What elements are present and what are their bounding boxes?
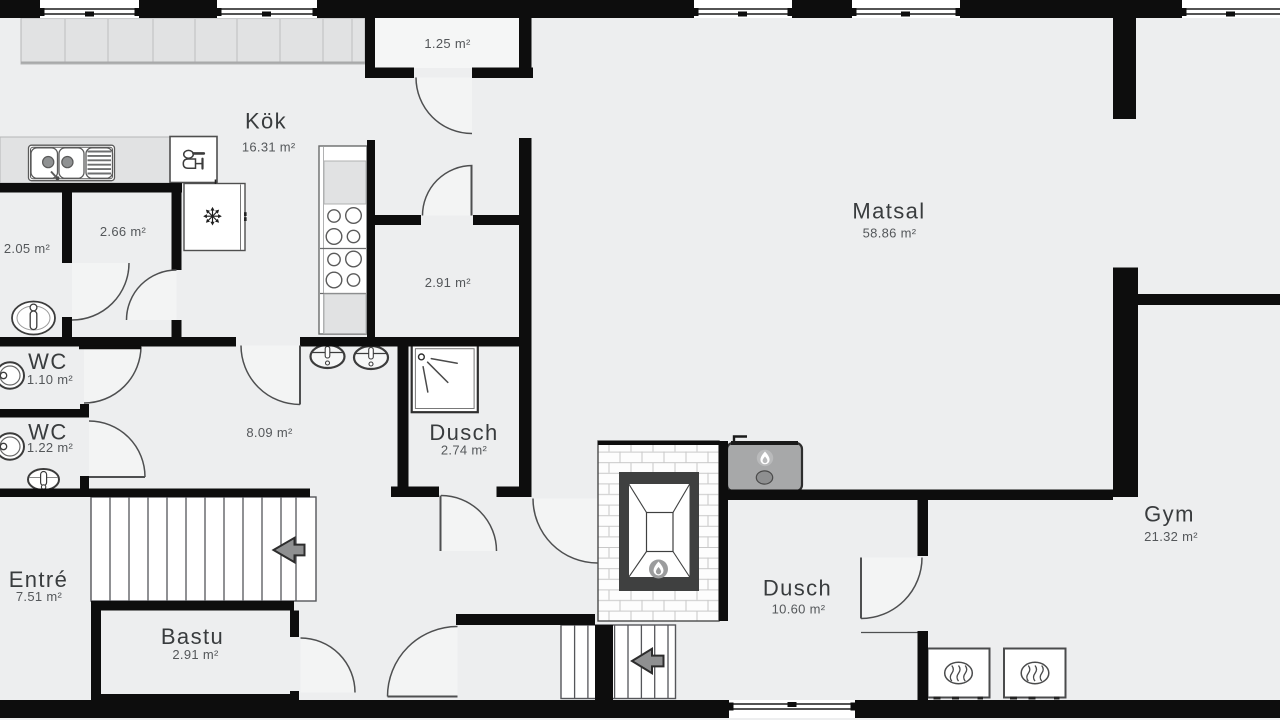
svg-text:7.51 m²: 7.51 m² [16,589,63,604]
svg-text:1.25 m²: 1.25 m² [424,36,471,51]
svg-text:2.05 m²: 2.05 m² [4,241,51,256]
svg-text:Dusch: Dusch [763,576,832,601]
svg-text:Gym: Gym [1144,502,1195,527]
svg-text:8.09 m²: 8.09 m² [246,425,293,440]
svg-text:21.32 m²: 21.32 m² [1144,529,1198,544]
svg-text:WC: WC [28,349,67,374]
svg-text:16.31 m²: 16.31 m² [242,140,296,155]
svg-text:1.22 m²: 1.22 m² [27,440,74,455]
svg-text:2.66 m²: 2.66 m² [100,224,147,239]
svg-text:2.91 m²: 2.91 m² [425,275,472,290]
svg-text:10.60 m²: 10.60 m² [772,602,826,617]
svg-text:Matsal: Matsal [852,198,925,223]
svg-text:58.86 m²: 58.86 m² [863,226,917,241]
svg-text:Dusch: Dusch [429,420,498,445]
svg-text:Bastu: Bastu [161,624,224,649]
svg-text:2.74 m²: 2.74 m² [441,443,488,458]
svg-text:Kök: Kök [245,109,287,134]
svg-text:2.91 m²: 2.91 m² [172,647,219,662]
svg-text:1.10 m²: 1.10 m² [27,372,74,387]
